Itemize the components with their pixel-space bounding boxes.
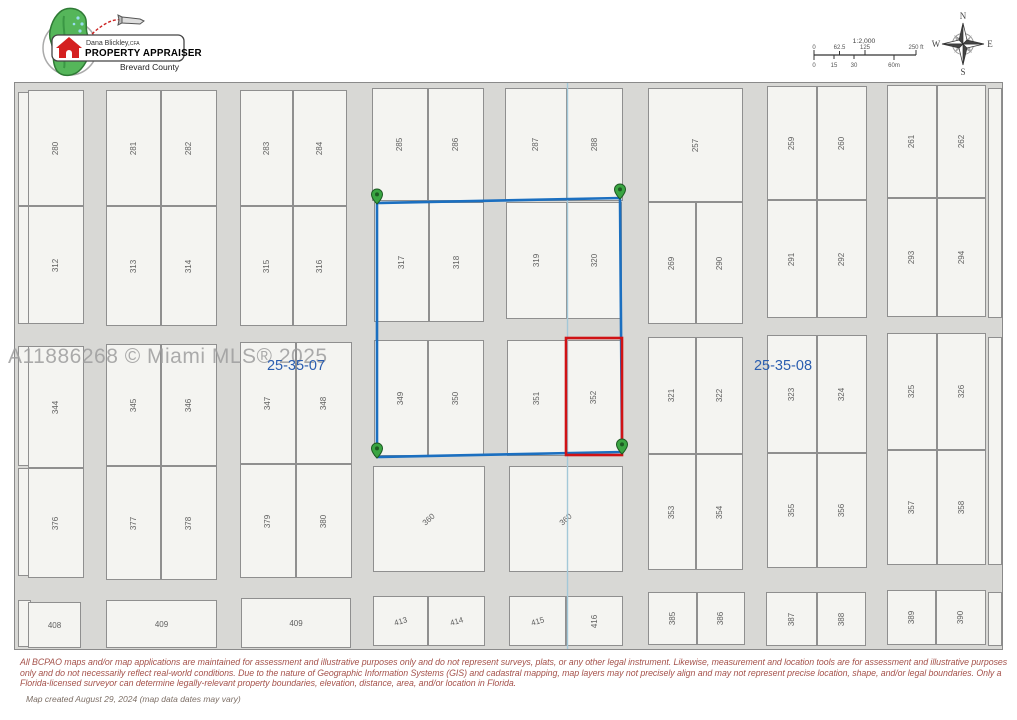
parcel-318[interactable]: 318 — [429, 202, 484, 322]
parcel-number-label: 356 — [837, 504, 846, 517]
parcel-269[interactable]: 269 — [648, 202, 696, 324]
parcel-number-label: 358 — [957, 501, 966, 514]
parcel-number-label: 349 — [396, 391, 405, 404]
scale-m-15: 15 — [831, 63, 838, 69]
disclaimer-text: All BCPAO maps and/or map applications a… — [20, 657, 1010, 689]
section-label-25-35-07: 25-35-07 — [267, 358, 325, 374]
compass-rose-icon: N E S W — [930, 10, 996, 76]
parcel-number-label: 409 — [289, 619, 302, 628]
parcel-number-label: 350 — [451, 391, 460, 404]
parcel-414[interactable]: 414 — [428, 596, 485, 646]
parcel-number-label: 294 — [957, 251, 966, 264]
parcel-314[interactable]: 314 — [161, 206, 217, 326]
parcel-260[interactable]: 260 — [817, 86, 867, 200]
parcel-number-label: 261 — [907, 135, 916, 148]
parcel-322[interactable]: 322 — [696, 337, 743, 454]
parcel-number-label: 257 — [691, 138, 700, 151]
parcel-number-label: 284 — [315, 141, 324, 154]
parcel-number-label: 377 — [129, 516, 138, 529]
parcel-number-label: 325 — [907, 385, 916, 398]
parcel-number-label: 345 — [129, 398, 138, 411]
parcel-285[interactable]: 285 — [372, 88, 428, 201]
parcel-number-label: 260 — [837, 136, 846, 149]
section-label-25-35-08: 25-35-08 — [754, 358, 812, 374]
parcel-321[interactable]: 321 — [648, 337, 696, 454]
parcel-number-label: 280 — [51, 141, 60, 154]
parcel-413[interactable]: 413 — [373, 596, 428, 646]
parcel-number-label: 283 — [262, 141, 271, 154]
parcel-number-label: 288 — [590, 138, 599, 151]
scale-ft-62: 62.5 — [834, 45, 846, 51]
parcel-293[interactable]: 293 — [887, 198, 937, 317]
parcel-number-label: 416 — [590, 614, 599, 627]
parcel-416[interactable]: 416 — [566, 596, 623, 646]
parcel-352[interactable]: 352 — [566, 340, 622, 455]
parcel-350[interactable]: 350 — [428, 340, 484, 456]
compass-w: W — [932, 39, 941, 49]
parcel-292[interactable]: 292 — [817, 200, 867, 318]
appraiser-name: Dana Blickley,CFA — [86, 40, 140, 47]
disclaimer-line-2: only and do not necessarily reflect real… — [20, 668, 1010, 679]
parcel-number-label: 347 — [263, 396, 272, 409]
parcel-number-label: 385 — [668, 612, 677, 625]
parcel-283[interactable]: 283 — [240, 90, 293, 206]
parcel-number-label: 318 — [452, 255, 461, 268]
disclaimer-line-1: All BCPAO maps and/or map applications a… — [20, 657, 1010, 668]
parcel-unlabeled — [988, 592, 1002, 646]
parcel-number-label: 408 — [48, 621, 61, 630]
parcel-386[interactable]: 386 — [697, 592, 745, 645]
bcpao-logo: Dana Blickley,CFA PROPERTY APPRAISER Bre… — [22, 4, 202, 78]
parcel-number-label: 314 — [184, 259, 193, 272]
parcel-number-label: 354 — [715, 505, 724, 518]
parcel-number-label: 414 — [449, 615, 464, 627]
scale-m-60: 60m — [888, 63, 900, 69]
compass-e: E — [987, 39, 993, 49]
parcel-316[interactable]: 316 — [293, 206, 347, 326]
parcel-number-label: 269 — [667, 256, 676, 269]
parcel-number-label: 293 — [907, 251, 916, 264]
parcel-number-label: 326 — [957, 385, 966, 398]
parcel-number-label: 353 — [667, 505, 676, 518]
parcel-number-label: 387 — [787, 612, 796, 625]
parcel-number-label: 390 — [956, 611, 965, 624]
parcel-409[interactable]: 409 — [106, 600, 217, 648]
parcel-number-label: 346 — [184, 398, 193, 411]
compass-main-points — [942, 23, 984, 65]
parcel-312[interactable]: 312 — [28, 206, 84, 324]
parcel-number-label: 292 — [837, 252, 846, 265]
parcel-313[interactable]: 313 — [106, 206, 161, 326]
parcel-number-label: 291 — [787, 252, 796, 265]
parcel-number-label: 355 — [787, 504, 796, 517]
compass-n: N — [960, 11, 967, 21]
compass-s: S — [960, 67, 965, 76]
parcel-number-label: 316 — [315, 259, 324, 272]
parcel-354[interactable]: 354 — [696, 454, 743, 570]
parcel-282[interactable]: 282 — [161, 90, 217, 206]
parcel-358[interactable]: 358 — [937, 450, 986, 565]
parcel-number-label: 386 — [716, 612, 725, 625]
parcel-291[interactable]: 291 — [767, 200, 817, 318]
parcel-376[interactable]: 376 — [28, 468, 84, 578]
parcel-320[interactable]: 320 — [567, 202, 622, 319]
parcel-415[interactable]: 415 — [509, 596, 566, 646]
parcel-number-label: 388 — [837, 612, 846, 625]
parcel-351[interactable]: 351 — [507, 340, 566, 456]
parcel-number-label: 409 — [155, 620, 168, 629]
parcel-326[interactable]: 326 — [937, 333, 986, 450]
parcel-number-label: 286 — [451, 138, 460, 151]
parcel-number-label: 360 — [421, 511, 437, 527]
disclaimer-line-3: Florida-licensed surveyor can determine … — [20, 678, 1010, 689]
parcel-385[interactable]: 385 — [648, 592, 697, 645]
parcel-378[interactable]: 378 — [161, 466, 217, 580]
parcel-number-label: 315 — [262, 259, 271, 272]
parcel-number-label: 413 — [393, 615, 408, 627]
county-name: Brevard County — [120, 62, 180, 72]
parcel-number-label: 324 — [837, 387, 846, 400]
parcel-number-label: 285 — [395, 138, 404, 151]
parcel-389[interactable]: 389 — [887, 590, 936, 645]
parcel-number-label: 290 — [715, 256, 724, 269]
parcel-number-label: 344 — [51, 400, 60, 413]
parcel-357[interactable]: 357 — [887, 450, 937, 565]
parcel-317[interactable]: 317 — [374, 202, 429, 322]
parcel-387[interactable]: 387 — [766, 592, 817, 646]
parcel-number-label: 320 — [590, 254, 599, 267]
parcel-353[interactable]: 353 — [648, 454, 696, 570]
parcel-356[interactable]: 356 — [817, 453, 867, 568]
parcel-number-label: 259 — [787, 136, 796, 149]
appraiser-title: PROPERTY APPRAISER — [85, 48, 202, 59]
parcel-409[interactable]: 409 — [241, 598, 351, 648]
map-created-date: Map created August 29, 2024 (map data da… — [26, 694, 241, 704]
parcel-number-label: 379 — [263, 514, 272, 527]
parcel-number-label: 312 — [51, 258, 60, 271]
parcel-287[interactable]: 287 — [505, 88, 567, 201]
parcel-349[interactable]: 349 — [374, 340, 428, 456]
parcel-408[interactable]: 408 — [28, 602, 81, 648]
parcel-number-label: 360 — [558, 511, 574, 527]
parcel-number-label: 287 — [531, 138, 540, 151]
bcpao-map-page: Dana Blickley,CFA PROPERTY APPRAISER Bre… — [0, 0, 1017, 720]
parcel-number-label: 282 — [184, 141, 193, 154]
parcel-number-label: 357 — [907, 501, 916, 514]
map-scale-bar: 1:2,000 0 62.5 125 250 ft 0 15 30 60m — [806, 34, 930, 70]
parcel-number-label: 281 — [129, 141, 138, 154]
parcel-284[interactable]: 284 — [293, 90, 347, 206]
parcel-261[interactable]: 261 — [887, 85, 937, 198]
parcel-number-label: 348 — [319, 396, 328, 409]
parcel-number-label: 317 — [397, 255, 406, 268]
parcel-number-label: 262 — [957, 135, 966, 148]
parcel-number-label: 376 — [51, 516, 60, 529]
parcel-390[interactable]: 390 — [936, 590, 986, 645]
parcel-unlabeled — [988, 88, 1002, 318]
parcel-377[interactable]: 377 — [106, 466, 161, 580]
parcel-380[interactable]: 380 — [296, 464, 352, 578]
parcel-388[interactable]: 388 — [817, 592, 866, 646]
parcel-number-label: 415 — [530, 615, 545, 627]
parcel-280[interactable]: 280 — [28, 90, 84, 206]
parcel-294[interactable]: 294 — [937, 198, 986, 317]
parcel-number-label: 351 — [532, 391, 541, 404]
scale-ft-0: 0 — [812, 45, 816, 51]
parcel-286[interactable]: 286 — [428, 88, 484, 201]
parcel-323[interactable]: 323 — [767, 335, 817, 453]
parcel-288[interactable]: 288 — [567, 88, 623, 201]
parcel-360[interactable]: 360 — [509, 466, 623, 572]
parcel-325[interactable]: 325 — [887, 333, 937, 450]
parcel-number-label: 323 — [787, 387, 796, 400]
parcel-257[interactable]: 257 — [648, 88, 743, 202]
parcel-number-label: 378 — [184, 516, 193, 529]
parcel-360[interactable]: 360 — [373, 466, 485, 572]
parcel-unlabeled — [988, 337, 1002, 565]
parcel-number-label: 380 — [319, 514, 328, 527]
parcel-315[interactable]: 315 — [240, 206, 293, 326]
parcel-355[interactable]: 355 — [767, 453, 817, 568]
scale-ratio: 1:2,000 — [853, 38, 876, 45]
scale-m-0: 0 — [812, 63, 816, 69]
rocket-icon — [118, 15, 144, 25]
parcel-379[interactable]: 379 — [240, 464, 296, 578]
parcel-319[interactable]: 319 — [506, 202, 567, 319]
parcel-number-label: 352 — [589, 391, 598, 404]
parcel-259[interactable]: 259 — [767, 86, 817, 200]
scale-m-30: 30 — [851, 63, 858, 69]
parcel-number-label: 322 — [715, 389, 724, 402]
scale-ft-125: 125 — [860, 45, 871, 51]
parcel-262[interactable]: 262 — [937, 85, 986, 198]
parcel-281[interactable]: 281 — [106, 90, 161, 206]
parcel-number-label: 313 — [129, 259, 138, 272]
parcel-number-label: 321 — [667, 389, 676, 402]
parcel-324[interactable]: 324 — [817, 335, 867, 453]
parcel-number-label: 319 — [532, 254, 541, 267]
parcel-290[interactable]: 290 — [696, 202, 743, 324]
parcel-number-label: 389 — [907, 611, 916, 624]
scale-ft-250: 250 ft — [908, 45, 923, 51]
